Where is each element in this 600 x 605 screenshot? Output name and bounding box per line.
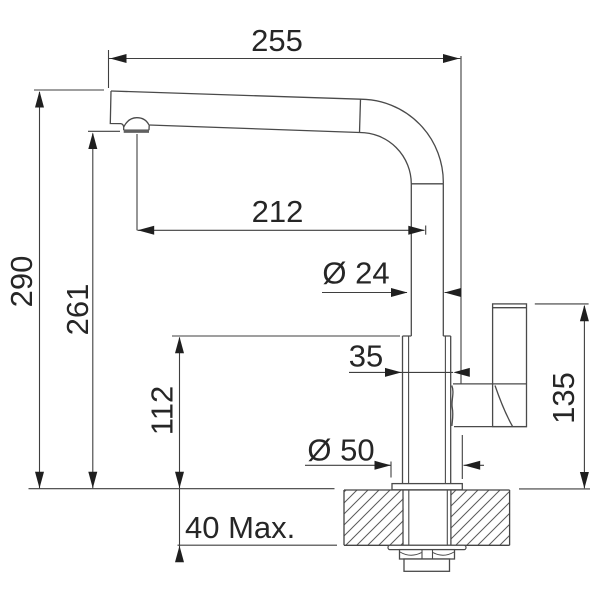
svg-text:212: 212 [252, 194, 304, 229]
svg-text:290: 290 [4, 256, 39, 308]
svg-text:135: 135 [546, 372, 581, 424]
svg-text:Ø 50: Ø 50 [307, 433, 374, 468]
svg-text:261: 261 [60, 284, 95, 336]
svg-text:35: 35 [349, 339, 383, 374]
svg-text:Ø 24: Ø 24 [322, 256, 389, 291]
svg-text:255: 255 [251, 23, 303, 58]
svg-text:40 Max.: 40 Max. [185, 510, 295, 545]
svg-text:112: 112 [145, 386, 180, 435]
